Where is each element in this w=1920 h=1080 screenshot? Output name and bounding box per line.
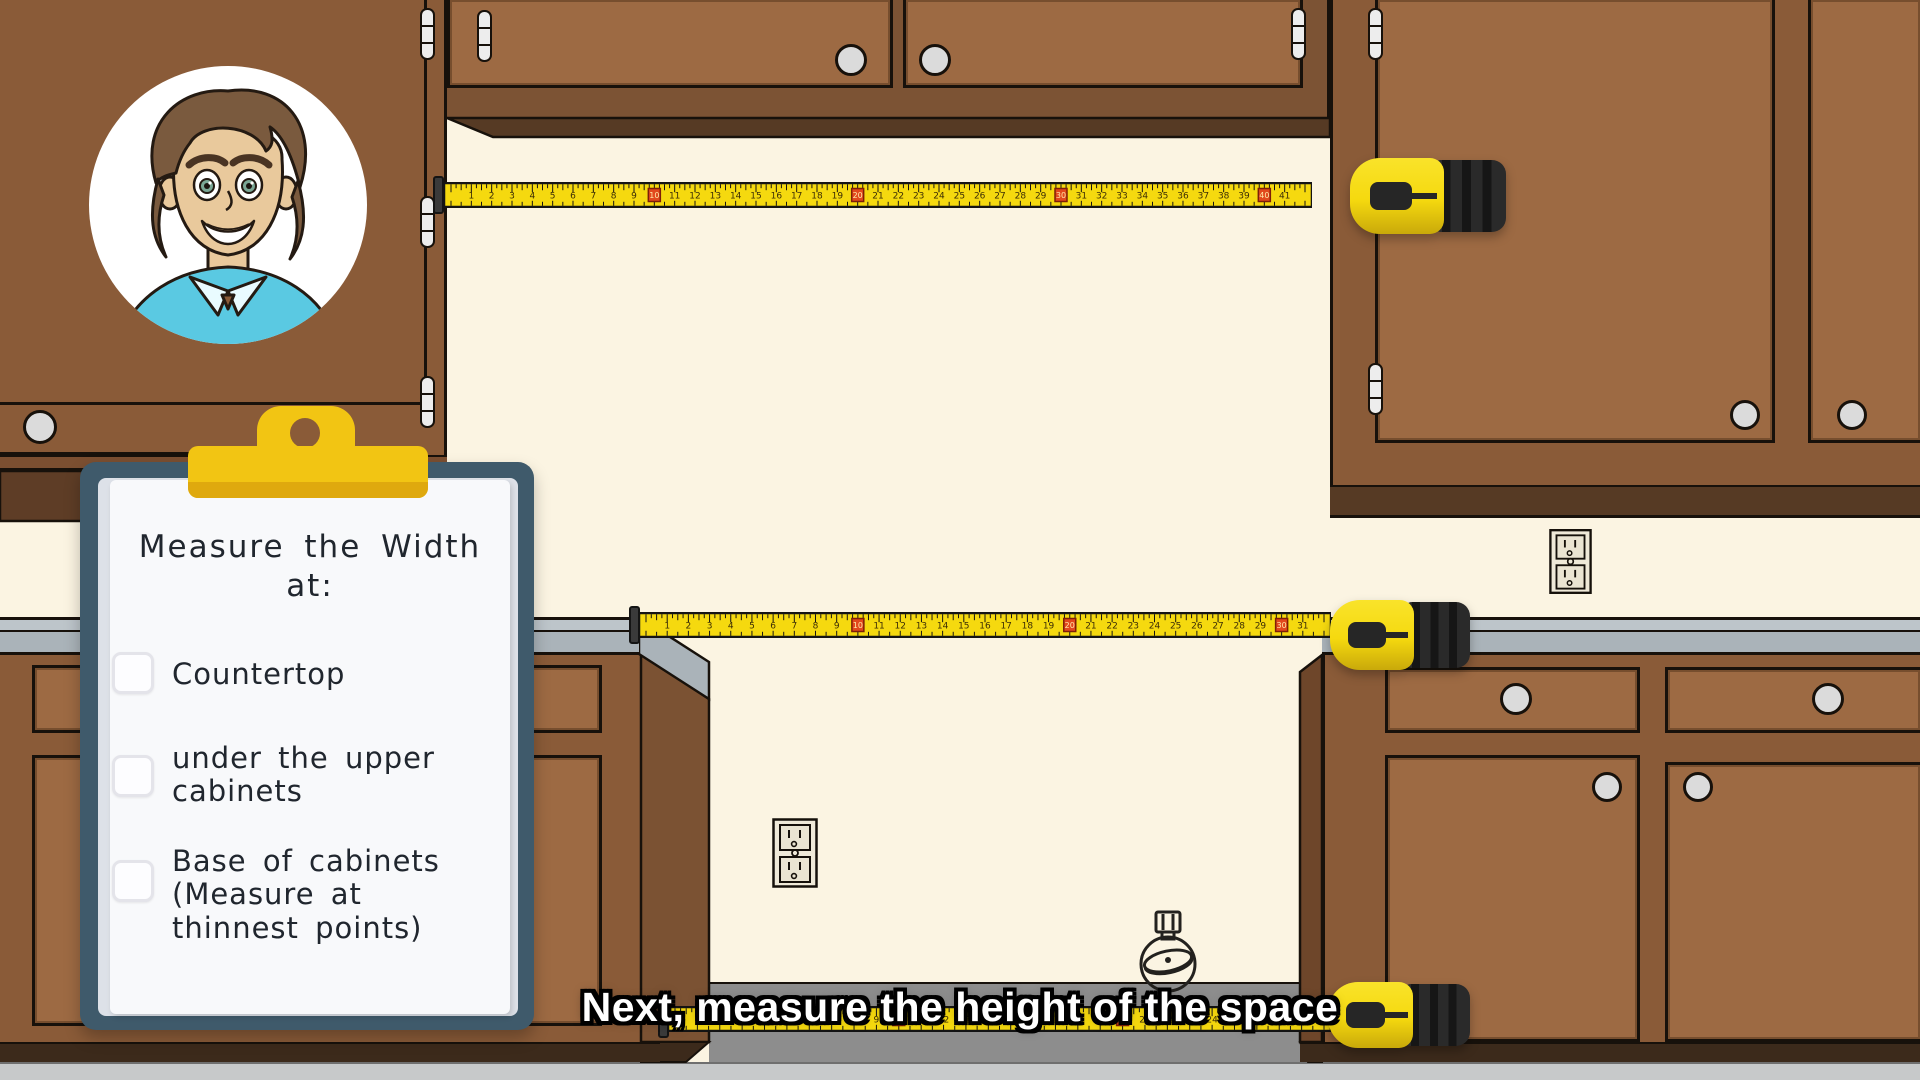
- cabinet-knob: [1837, 400, 1867, 430]
- svg-text:26: 26: [974, 192, 986, 202]
- tape-case-grip: [1404, 602, 1470, 668]
- upper-middle-cabinet-door-left: [447, 0, 893, 88]
- svg-text:9: 9: [834, 622, 840, 632]
- svg-text:13: 13: [916, 622, 927, 632]
- kitchen-measuring-scene: 1234567891011121314151617181920212223242…: [0, 0, 1920, 1080]
- svg-text:1: 1: [664, 622, 670, 632]
- cabinet-hinge: [1368, 363, 1383, 415]
- power-outlet-icon: [772, 818, 818, 888]
- svg-text:23: 23: [1128, 622, 1139, 632]
- svg-text:24: 24: [1149, 622, 1161, 632]
- svg-text:14: 14: [730, 192, 742, 202]
- svg-text:7: 7: [791, 622, 797, 632]
- tape-measure-case-countertop: [1330, 600, 1470, 670]
- checkbox-under-upper-cabinets[interactable]: [112, 755, 154, 797]
- svg-text:17: 17: [791, 192, 802, 202]
- tape-measure-hook: [629, 606, 640, 644]
- svg-text:35: 35: [1157, 192, 1168, 202]
- svg-text:6: 6: [770, 622, 776, 632]
- svg-text:21: 21: [872, 192, 883, 202]
- svg-text:20: 20: [1065, 621, 1075, 630]
- cabinet-knob: [1812, 683, 1844, 715]
- svg-text:4: 4: [728, 622, 734, 632]
- svg-text:25: 25: [1170, 622, 1181, 632]
- tape-lock-slider: [1383, 632, 1408, 638]
- svg-text:14: 14: [937, 622, 949, 632]
- svg-text:21: 21: [1085, 622, 1096, 632]
- svg-text:3: 3: [707, 622, 713, 632]
- svg-text:31: 31: [1297, 622, 1308, 632]
- svg-text:7: 7: [590, 192, 596, 202]
- appliance-hookup-icon: [1130, 908, 1206, 994]
- floor: [0, 1062, 1920, 1080]
- checklist-item-countertop: Countertop: [172, 658, 502, 691]
- cabinet-knob: [23, 410, 57, 444]
- svg-text:41: 41: [1279, 192, 1290, 202]
- svg-text:13: 13: [710, 192, 721, 202]
- svg-text:8: 8: [611, 192, 617, 202]
- svg-text:33: 33: [1116, 192, 1127, 202]
- cabinet-knob: [1500, 683, 1532, 715]
- upper-right-cabinet-underside: [1330, 485, 1920, 518]
- svg-text:27: 27: [1212, 622, 1223, 632]
- upper-right-cabinet-door-right: [1808, 0, 1920, 443]
- svg-text:15: 15: [958, 622, 969, 632]
- svg-text:1: 1: [468, 192, 474, 202]
- svg-text:23: 23: [913, 192, 924, 202]
- cabinet-knob: [1592, 772, 1622, 802]
- svg-text:27: 27: [994, 192, 1005, 202]
- svg-text:10: 10: [649, 191, 659, 200]
- checklist-item-under-upper-cabinets: under the upper cabinets: [172, 742, 492, 809]
- checkbox-countertop[interactable]: [112, 652, 154, 694]
- right-base-drawer: [1665, 667, 1920, 733]
- svg-text:28: 28: [1015, 192, 1027, 202]
- svg-text:18: 18: [811, 192, 823, 202]
- cabinet-hinge: [420, 8, 435, 60]
- tape-measure-case-upper: [1350, 158, 1506, 234]
- svg-text:30: 30: [1056, 191, 1066, 200]
- tape-measure-blade-countertop: 1234567891011121314151617181920212223242…: [639, 612, 1331, 638]
- svg-text:11: 11: [669, 192, 680, 202]
- cabinet-hinge: [420, 376, 435, 428]
- svg-text:30: 30: [1277, 621, 1287, 630]
- cabinet-knob: [1683, 772, 1713, 802]
- subtitle-caption: Next, measure the height of the space: [0, 984, 1920, 1031]
- cabinet-hinge: [1368, 8, 1383, 60]
- svg-text:16: 16: [771, 192, 783, 202]
- svg-text:40: 40: [1259, 191, 1269, 200]
- checklist-title-suffix: at:: [110, 567, 510, 606]
- clipboard-clip-hole: [290, 418, 320, 448]
- cabinet-hinge: [477, 10, 492, 62]
- svg-text:25: 25: [954, 192, 965, 202]
- cabinet-knob: [1730, 400, 1760, 430]
- svg-text:6: 6: [570, 192, 576, 202]
- power-outlet-icon: [1549, 528, 1592, 595]
- svg-text:26: 26: [1191, 622, 1203, 632]
- svg-text:37: 37: [1198, 192, 1209, 202]
- svg-text:22: 22: [893, 192, 904, 202]
- svg-text:16: 16: [979, 622, 991, 632]
- svg-text:22: 22: [1106, 622, 1117, 632]
- tape-measure-blade-upper: 1234567891011121314151617181920212223242…: [444, 182, 1312, 208]
- svg-text:2: 2: [686, 622, 692, 632]
- svg-text:8: 8: [813, 622, 819, 632]
- svg-text:10: 10: [853, 621, 863, 630]
- svg-text:2: 2: [489, 192, 495, 202]
- svg-text:3: 3: [509, 192, 515, 202]
- svg-text:17: 17: [1000, 622, 1011, 632]
- svg-text:9: 9: [631, 192, 637, 202]
- svg-text:24: 24: [933, 192, 945, 202]
- svg-text:19: 19: [1043, 622, 1055, 632]
- upper-middle-cabinet-door-right: [903, 0, 1303, 88]
- svg-text:5: 5: [550, 192, 556, 202]
- svg-text:29: 29: [1255, 622, 1267, 632]
- checklist-title: Measure the Width at:: [110, 528, 510, 606]
- svg-text:29: 29: [1035, 192, 1047, 202]
- svg-text:19: 19: [832, 192, 844, 202]
- svg-text:32: 32: [1096, 192, 1107, 202]
- tape-lock-button: [1370, 182, 1412, 211]
- svg-text:12: 12: [689, 192, 700, 202]
- tape-measure-hook: [433, 176, 444, 214]
- cabinet-knob: [835, 44, 867, 76]
- svg-text:12: 12: [895, 622, 906, 632]
- svg-text:18: 18: [1022, 622, 1034, 632]
- left-toe-kick: [0, 1042, 660, 1062]
- svg-text:20: 20: [853, 191, 863, 200]
- cabinet-hinge: [1291, 8, 1306, 60]
- svg-text:31: 31: [1076, 192, 1087, 202]
- checklist-title-line: Measure the Width: [110, 528, 510, 567]
- tape-lock-slider: [1409, 193, 1437, 199]
- instructor-avatar: [86, 63, 370, 347]
- svg-text:5: 5: [749, 622, 755, 632]
- upper-middle-cabinet-underside: [427, 116, 1330, 140]
- svg-text:38: 38: [1218, 192, 1230, 202]
- svg-text:34: 34: [1137, 192, 1149, 202]
- svg-text:36: 36: [1177, 192, 1189, 202]
- tape-lock-button: [1348, 622, 1386, 649]
- clipboard-clip-lip: [188, 482, 428, 498]
- svg-text:15: 15: [750, 192, 761, 202]
- cabinet-knob: [919, 44, 951, 76]
- svg-text:11: 11: [873, 622, 884, 632]
- checklist-item-base-of-cabinets: Base of cabinets (Measure at thinnest po…: [172, 845, 457, 945]
- svg-text:39: 39: [1238, 192, 1250, 202]
- svg-text:4: 4: [529, 192, 535, 202]
- svg-text:28: 28: [1234, 622, 1246, 632]
- checkbox-base-of-cabinets[interactable]: [112, 860, 154, 902]
- tape-case-grip: [1433, 160, 1506, 231]
